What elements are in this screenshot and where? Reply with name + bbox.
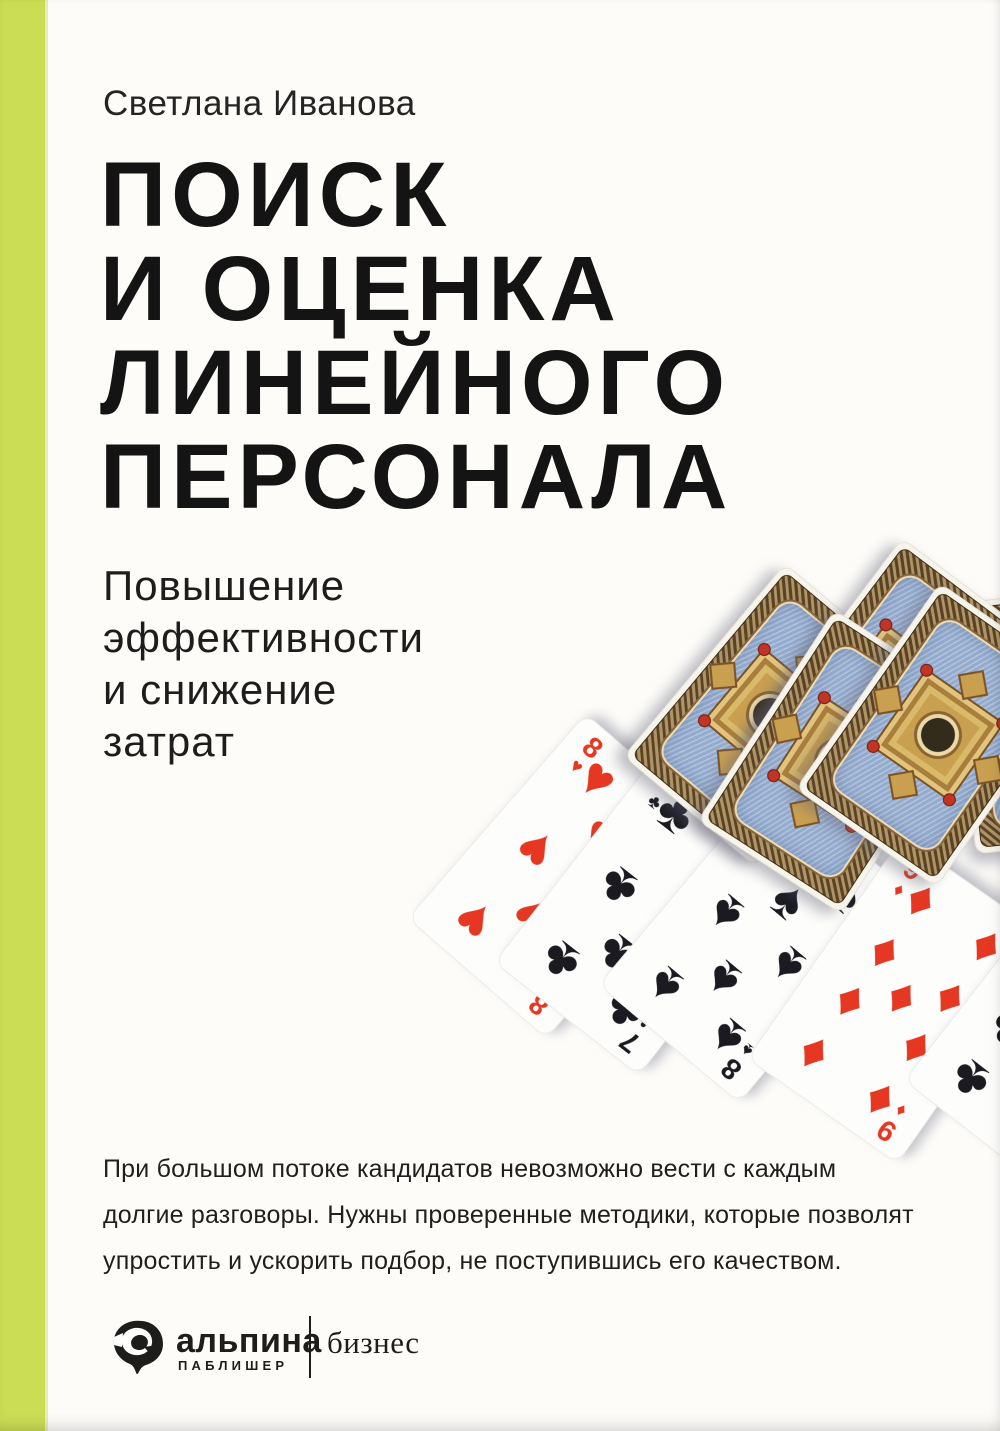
blurb-line: упростить и ускорить подбор, не поступив… — [103, 1238, 914, 1284]
title-line: ПОИСК — [100, 148, 732, 242]
publisher-subname: ПАБЛИШЕР — [178, 1358, 288, 1373]
publisher-name: альпина — [176, 1322, 322, 1361]
subtitle-line: эффективности — [103, 612, 424, 664]
blurb-line: долгие разговоры. Нужны проверенные мето… — [103, 1192, 914, 1238]
clubs-pip-icon: ♣ — [588, 855, 649, 919]
spades-pip-icon: ♠ — [697, 884, 754, 944]
book-title: ПОИСКИ ОЦЕНКАЛИНЕЙНОГОПЕРСОНАЛА — [100, 148, 732, 524]
card-back-medallion — [871, 668, 1000, 802]
spades-pip-icon: ♠ — [694, 950, 751, 1010]
series-label: бизнес — [327, 1325, 420, 1361]
author-name: Светлана Иванова — [103, 84, 416, 124]
title-line: ПЕРСОНАЛА — [100, 430, 732, 524]
title-line: И ОЦЕНКА — [100, 242, 732, 336]
diamonds-pip-icon: ♦ — [822, 973, 876, 1033]
clubs-pip-icon: ♣ — [530, 929, 591, 993]
book-cover: 8♥8♥♥♥♥♥♥♥♥♥7♣7♣♣♣♣♣♣♣♣8♠8♠♠♠♠♠♠♠♠♠9♦9♦♦… — [0, 0, 1000, 1431]
hearts-pip-icon: ♥ — [506, 819, 566, 881]
hearts-pip-icon: ♥ — [444, 889, 504, 951]
blurb-text: При большом потоке кандидатов невозможно… — [103, 1146, 914, 1284]
title-line: ЛИНЕЙНОГО — [100, 336, 732, 430]
blurb-line: При большом потоке кандидатов невозможно… — [103, 1146, 914, 1192]
subtitle-line: и снижение — [103, 664, 424, 716]
publisher-block: альпина ПАБЛИШЕР бизнес — [112, 1316, 512, 1382]
spades-pip-icon: ♠ — [636, 956, 693, 1016]
subtitle-line: затрат — [103, 716, 424, 768]
diamonds-pip-icon: ♦ — [785, 1025, 839, 1085]
clubs-pip-icon: ♣ — [939, 1048, 1000, 1112]
book-subtitle: Повышениеэффективностии снижениезатрат — [103, 560, 424, 768]
alpina-publisher-logo-icon — [112, 1318, 172, 1374]
logo-divider — [309, 1316, 311, 1378]
subtitle-line: Повышение — [103, 560, 424, 612]
